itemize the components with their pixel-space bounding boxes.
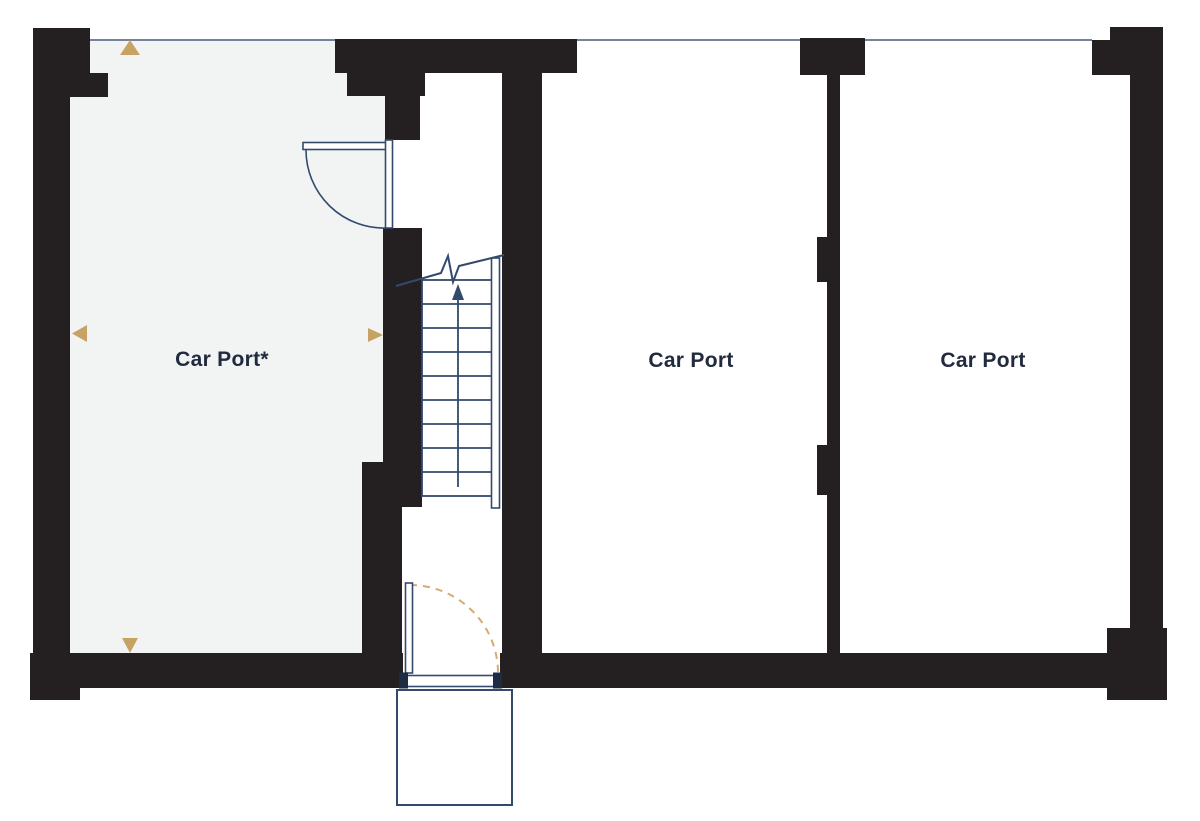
door-bottom-frame-post-left [399, 673, 408, 689]
plan-linework [0, 0, 1200, 821]
room-label-car-port-right: Car Port [940, 349, 1025, 373]
door-top-jamb [386, 140, 393, 228]
stair-flight [422, 280, 492, 496]
dimension-arrow-left-icon [72, 325, 87, 342]
door-bottom-swing-arc [410, 585, 498, 673]
staircase [396, 255, 504, 508]
entry-porch [397, 690, 512, 805]
door-top-swing-arc [306, 150, 387, 228]
dimension-arrow-up-icon [120, 40, 140, 55]
room-label-car-port-left: Car Port* [175, 348, 269, 372]
stair-break-line [396, 255, 504, 286]
stairs-up-arrow-icon [452, 284, 464, 300]
door-bottom [399, 583, 502, 689]
door-top [303, 140, 393, 228]
dimension-arrow-down-icon [122, 638, 138, 653]
door-bottom-threshold [402, 676, 499, 687]
dimension-markers [72, 40, 383, 653]
dimension-arrow-right-icon [368, 328, 383, 342]
door-bottom-leaf [406, 583, 413, 673]
stair-stringer [492, 258, 500, 508]
room-label-car-port-middle: Car Port [648, 349, 733, 373]
door-top-leaf [303, 143, 388, 150]
floorplan: Car Port* Car Port Car Port [0, 0, 1200, 821]
door-bottom-frame-post-right [493, 673, 502, 689]
